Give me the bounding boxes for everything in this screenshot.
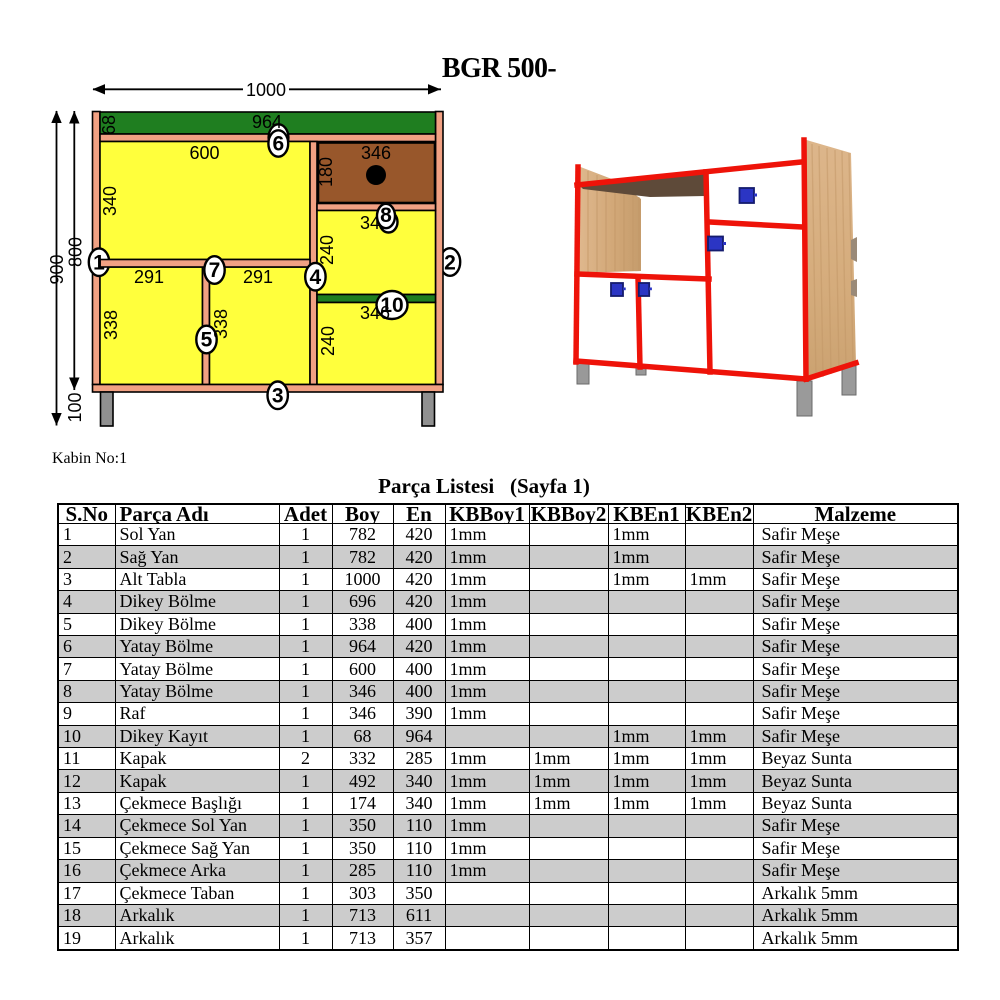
svg-text:2: 2 <box>444 251 456 274</box>
svg-text:340: 340 <box>100 186 120 216</box>
svg-text:964: 964 <box>252 112 282 132</box>
svg-text:10: 10 <box>380 294 403 317</box>
svg-text:800: 800 <box>66 237 86 267</box>
svg-text:100: 100 <box>65 392 85 422</box>
svg-text:900: 900 <box>47 254 67 284</box>
svg-text:180: 180 <box>316 157 336 187</box>
svg-text:3: 3 <box>272 385 284 408</box>
svg-text:240: 240 <box>317 235 337 265</box>
svg-text:8: 8 <box>380 204 392 227</box>
svg-text:346: 346 <box>361 143 391 163</box>
svg-text:240: 240 <box>318 326 338 356</box>
svg-text:291: 291 <box>243 267 273 287</box>
svg-text:6: 6 <box>272 133 284 156</box>
svg-text:338: 338 <box>211 309 231 339</box>
svg-text:1000: 1000 <box>246 80 286 100</box>
svg-text:291: 291 <box>134 267 164 287</box>
svg-text:1: 1 <box>93 252 105 275</box>
svg-text:338: 338 <box>101 310 121 340</box>
svg-text:4: 4 <box>310 266 322 289</box>
svg-text:68: 68 <box>99 115 119 135</box>
svg-text:600: 600 <box>189 143 219 163</box>
svg-text:7: 7 <box>209 259 221 282</box>
